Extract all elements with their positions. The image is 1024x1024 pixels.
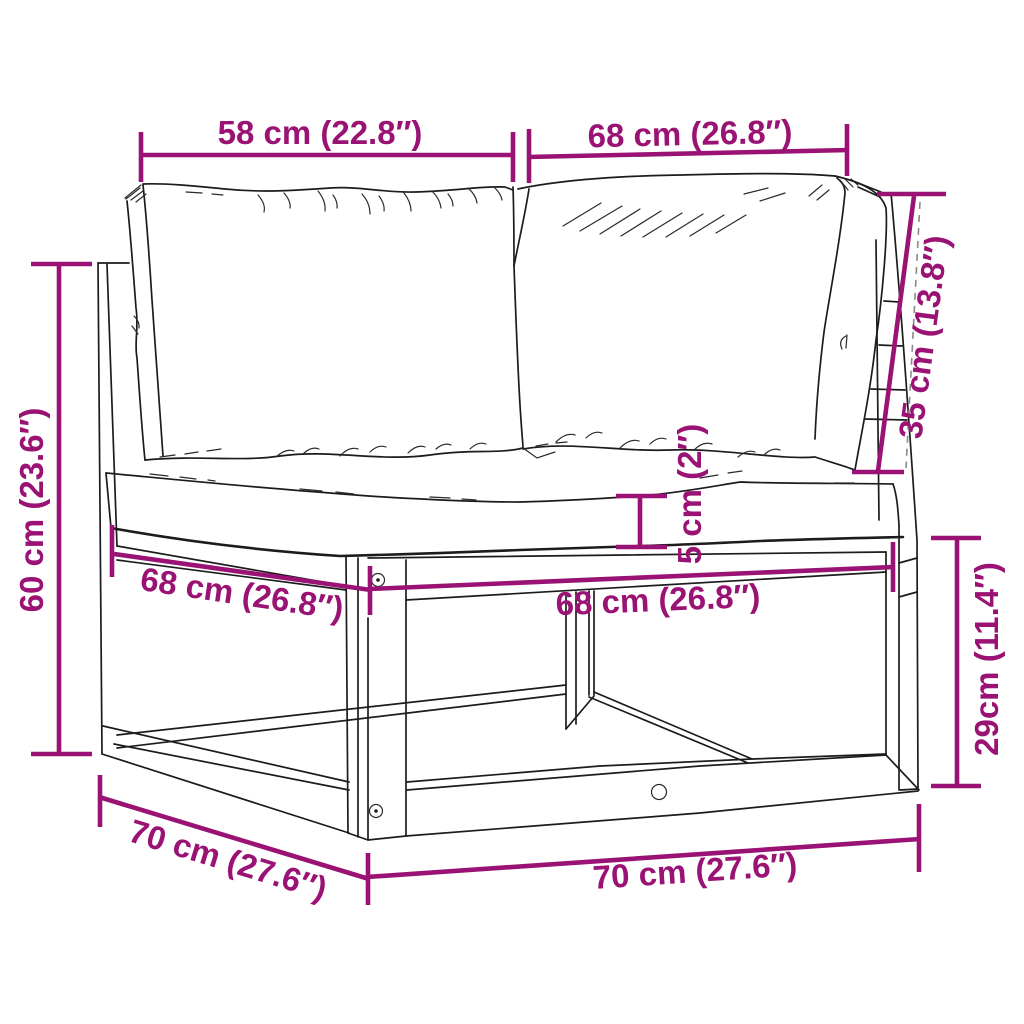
svg-text:5 cm (2″): 5 cm (2″) <box>671 424 708 565</box>
svg-text:68 cm (26.8″): 68 cm (26.8″) <box>587 113 793 155</box>
svg-text:58 cm (22.8″): 58 cm (22.8″) <box>218 114 423 151</box>
svg-text:60 cm (23.6″): 60 cm (23.6″) <box>13 408 50 613</box>
svg-text:29cm (11.4″): 29cm (11.4″) <box>968 562 1005 756</box>
